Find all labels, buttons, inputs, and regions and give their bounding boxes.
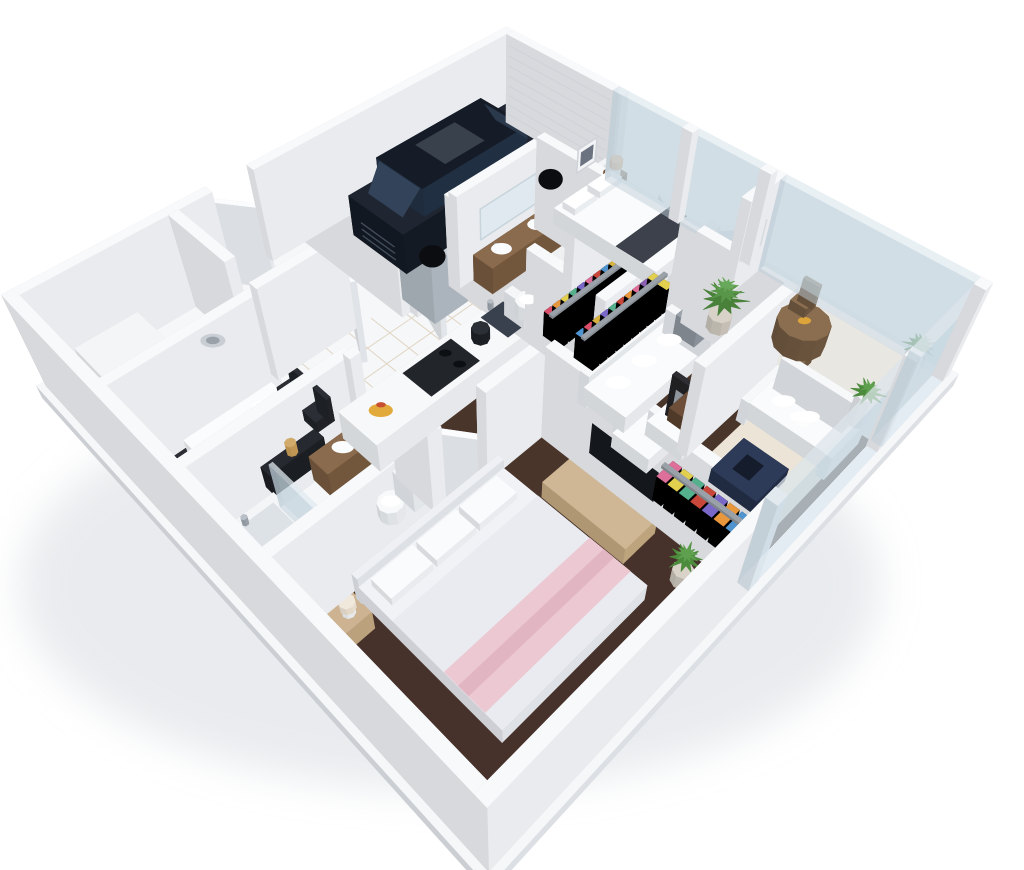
suv-wheel-rear xyxy=(538,169,562,190)
burner-2 xyxy=(439,350,452,357)
kettle xyxy=(471,321,490,345)
render-root xyxy=(2,27,993,870)
burner-4 xyxy=(453,361,466,368)
sofa-cushion-1 xyxy=(605,376,631,389)
suv-wheel-front xyxy=(419,245,445,267)
washer-door-inner xyxy=(206,337,220,345)
cat-body xyxy=(790,411,808,421)
toilet2-seat xyxy=(380,496,400,507)
balcony-fruit-bowl xyxy=(798,317,811,324)
sofa-cushion-3 xyxy=(657,334,682,346)
cat-head xyxy=(797,421,808,427)
scene-canvas xyxy=(0,0,1024,870)
fruit-apple xyxy=(376,402,386,407)
vanity-sink-1 xyxy=(491,243,512,254)
lounge2-cushion-1 xyxy=(772,395,796,407)
apartment-3d-floorplan xyxy=(0,0,1024,870)
sofa-cushion-2 xyxy=(632,354,657,367)
